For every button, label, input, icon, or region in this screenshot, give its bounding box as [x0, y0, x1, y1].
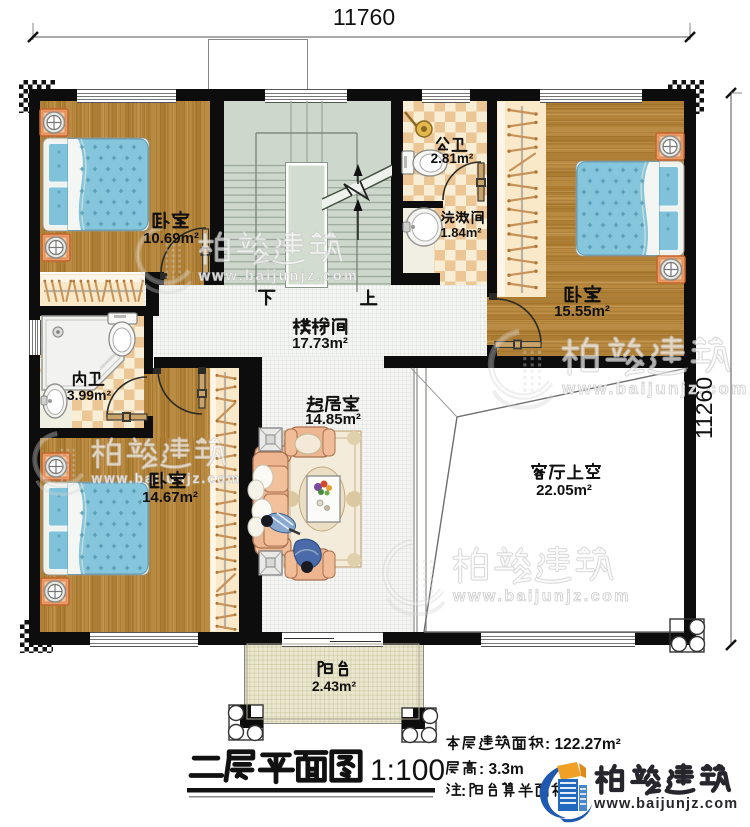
svg-text:www.baijunjz.com: www.baijunjz.com	[198, 269, 359, 285]
svg-text:11260: 11260	[691, 377, 717, 439]
svg-text::: :	[461, 783, 466, 800]
svg-text:2.81m²: 2.81m²	[431, 151, 474, 166]
svg-text:www.baijunjz.com: www.baijunjz.com	[561, 379, 749, 398]
svg-text:22.05m²: 22.05m²	[536, 482, 592, 499]
svg-text:www.baijunjz.com: www.baijunjz.com	[91, 471, 242, 486]
svg-text:11760: 11760	[333, 4, 395, 30]
svg-text:: 122.27m²: : 122.27m²	[545, 736, 621, 753]
svg-text:14.85m²: 14.85m²	[305, 411, 361, 428]
svg-text:: 3.3m: : 3.3m	[479, 761, 524, 778]
svg-text:17.73m²: 17.73m²	[292, 335, 348, 352]
svg-text:www.baijunjz.com: www.baijunjz.com	[452, 588, 631, 605]
svg-text:3.99m²: 3.99m²	[67, 387, 112, 403]
svg-text:1.84m²: 1.84m²	[440, 225, 482, 240]
svg-text:10.69m²: 10.69m²	[143, 230, 199, 247]
svg-text:15.55m²: 15.55m²	[554, 303, 610, 320]
svg-text:2.43m²: 2.43m²	[312, 678, 357, 694]
svg-text:1:100: 1:100	[370, 754, 445, 787]
svg-text:14.67m²: 14.67m²	[142, 489, 198, 506]
svg-text:www.baijunjz.com: www.baijunjz.com	[593, 796, 738, 812]
